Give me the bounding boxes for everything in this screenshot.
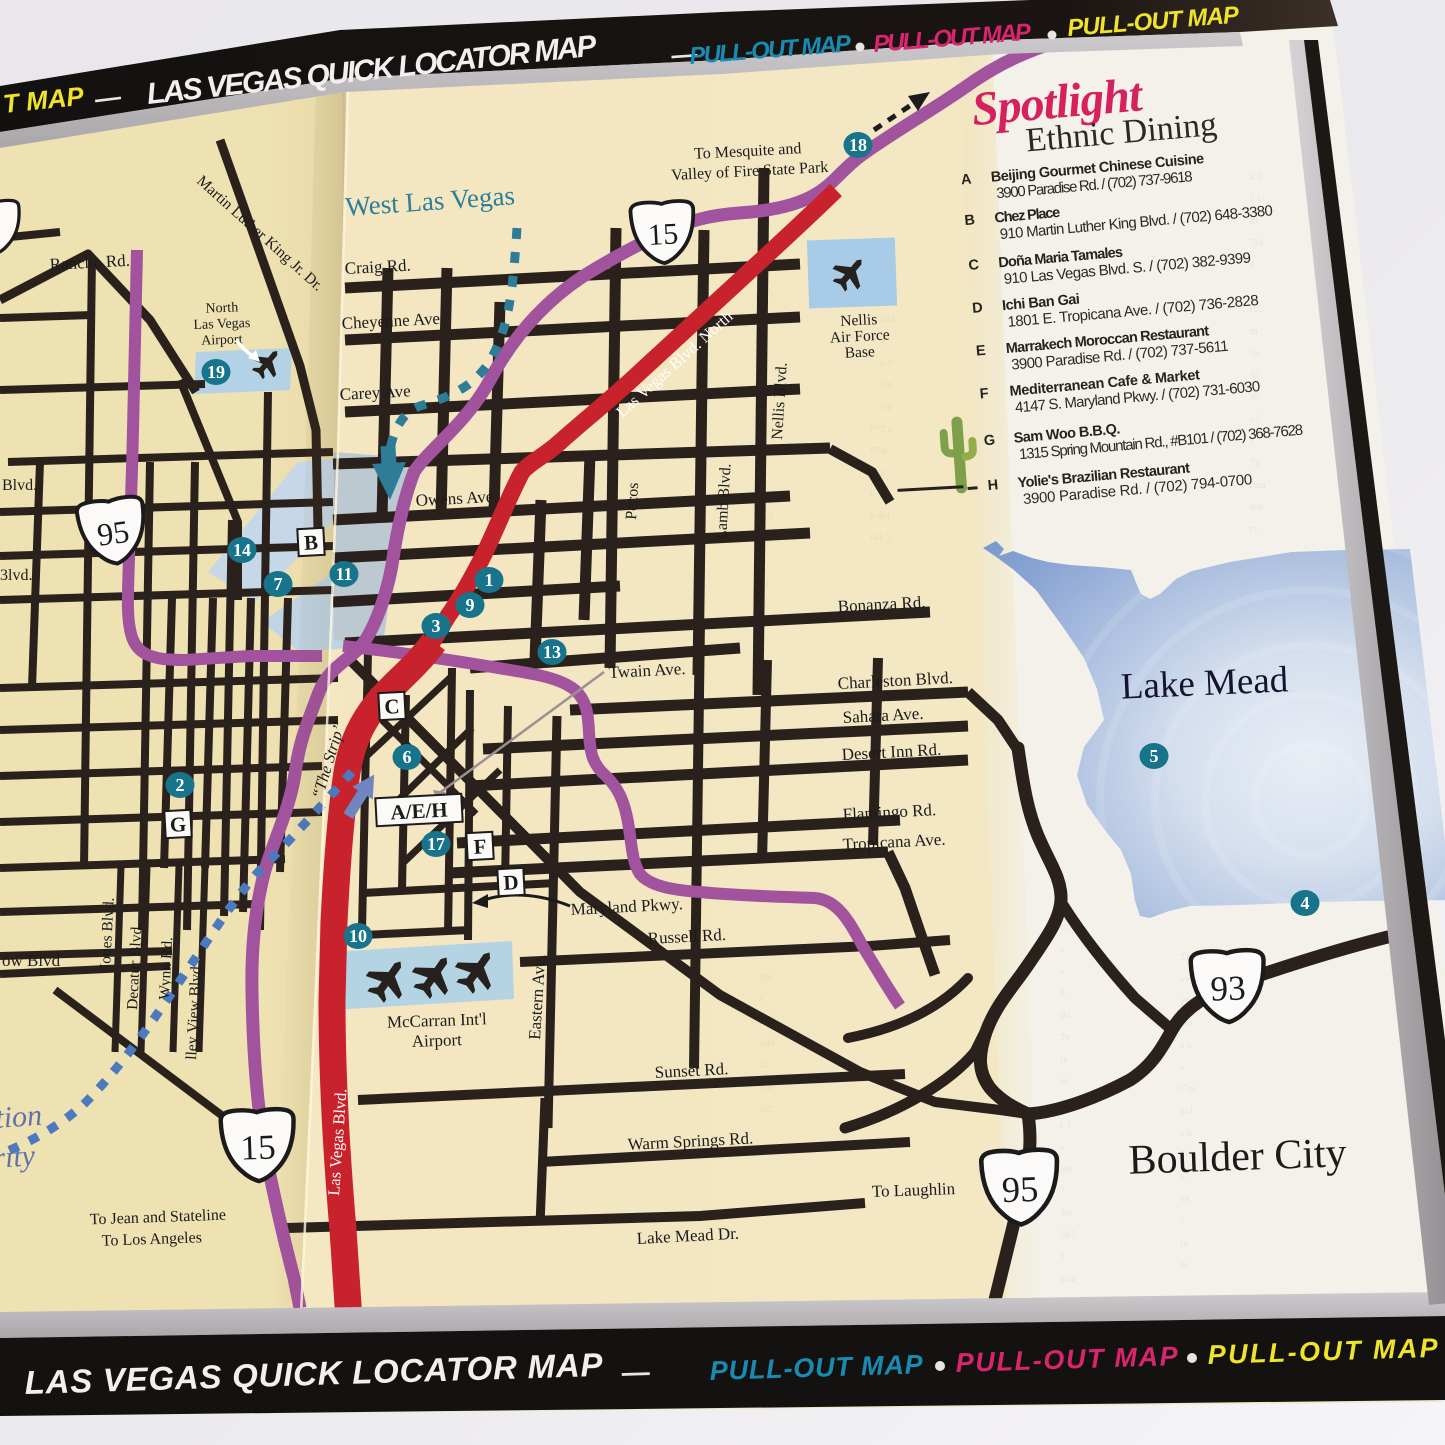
- svg-text:s: s: [1060, 1142, 1064, 1153]
- svg-text:G: G: [983, 432, 996, 449]
- svg-text:—: —: [621, 1356, 650, 1388]
- svg-text:vr: vr: [1060, 922, 1069, 933]
- svg-text:2v: 2v: [1060, 1032, 1070, 1043]
- svg-text:Base: Base: [844, 343, 875, 362]
- svg-text:n 0: n 0: [880, 358, 893, 369]
- svg-text:G: G: [169, 812, 187, 837]
- svg-text:ni3: ni3: [1180, 1106, 1193, 1117]
- svg-text:0d: 0d: [1060, 1010, 1070, 1021]
- svg-text:13: 13: [543, 642, 561, 662]
- svg-text:4t: 4t: [760, 1060, 768, 1071]
- svg-text:2: 2: [880, 292, 885, 303]
- svg-text:a a: a a: [1180, 1040, 1192, 1051]
- svg-text:ndd: ndd: [760, 1038, 775, 1049]
- svg-text:93: 93: [1210, 968, 1246, 1008]
- svg-text:n33: n33: [880, 314, 895, 325]
- svg-text:rity: rity: [0, 1139, 37, 1175]
- svg-text:A/E/H: A/E/H: [390, 798, 448, 825]
- svg-text:m 4: m 4: [1060, 1274, 1075, 1285]
- svg-text:4se: 4se: [1250, 502, 1264, 513]
- svg-text:F: F: [979, 386, 989, 403]
- svg-text:Blvd.: Blvd.: [2, 477, 37, 494]
- svg-text:H: H: [987, 477, 999, 494]
- svg-text:tion: tion: [0, 1099, 43, 1135]
- svg-text:rn: rn: [1180, 1238, 1188, 1249]
- svg-text:15: 15: [647, 216, 679, 252]
- svg-text:2: 2: [176, 775, 185, 795]
- svg-text:19: 19: [207, 362, 225, 382]
- svg-text:Wynn Rd.: Wynn Rd.: [156, 937, 176, 1001]
- svg-text:7r3: 7r3: [1250, 238, 1263, 249]
- svg-text:To Laughlin: To Laughlin: [871, 1179, 955, 1201]
- svg-text:Twain Ave.: Twain Ave.: [608, 659, 686, 682]
- svg-text:e: e: [1060, 966, 1065, 977]
- svg-text:14: 14: [233, 540, 251, 560]
- svg-text:Craig Rd.: Craig Rd.: [344, 256, 411, 278]
- svg-text:7: 7: [1180, 1216, 1185, 1227]
- svg-text:Boulder City: Boulder City: [1128, 1130, 1348, 1184]
- svg-text:er: er: [1060, 1076, 1068, 1087]
- svg-text:r 3: r 3: [1060, 1120, 1071, 1131]
- svg-text:m: m: [1250, 326, 1258, 337]
- svg-text:4: 4: [1301, 893, 1310, 913]
- svg-text:t: t: [760, 994, 763, 1005]
- svg-text:3: 3: [432, 616, 441, 636]
- svg-text:Pecos: Pecos: [623, 482, 642, 520]
- svg-text:North: North: [205, 300, 238, 316]
- svg-text:9: 9: [466, 595, 475, 615]
- svg-text:Sunset Rd.: Sunset Rd.: [654, 1059, 729, 1082]
- svg-text:—: —: [93, 81, 122, 114]
- svg-text:E: E: [975, 343, 986, 360]
- svg-text:C: C: [968, 257, 980, 274]
- svg-text:0 d: 0 d: [870, 510, 883, 521]
- svg-text:2 d: 2 d: [880, 424, 893, 435]
- svg-text:ow Blvd: ow Blvd: [2, 951, 61, 970]
- svg-text:Las Vegas: Las Vegas: [193, 316, 250, 333]
- svg-text:4t: 4t: [880, 446, 888, 457]
- svg-text:1: 1: [485, 570, 494, 590]
- svg-text:Lake Mead: Lake Mead: [1120, 659, 1290, 707]
- svg-text:ied: ied: [1060, 1164, 1072, 1175]
- svg-text:17: 17: [427, 834, 445, 854]
- svg-text:A: A: [960, 171, 972, 188]
- svg-text:Airport: Airport: [411, 1030, 462, 1051]
- svg-text:iad: iad: [870, 532, 882, 543]
- svg-text:5: 5: [1150, 746, 1159, 766]
- svg-text:6: 6: [403, 747, 412, 767]
- svg-text:7n: 7n: [1250, 458, 1260, 469]
- svg-text:95: 95: [1001, 1169, 1039, 1210]
- svg-text:Carey Ave: Carey Ave: [339, 381, 411, 404]
- svg-text:d: d: [1060, 988, 1065, 999]
- svg-text:rrs: rrs: [870, 422, 881, 433]
- svg-text:n: n: [1180, 1062, 1185, 1073]
- svg-text:v2: v2: [1250, 414, 1260, 425]
- svg-text:v: v: [1060, 944, 1065, 955]
- svg-text:0s: 0s: [1250, 348, 1259, 359]
- svg-text:t7m: t7m: [1180, 1084, 1196, 1095]
- svg-text:rv: rv: [1250, 524, 1258, 535]
- svg-text:7ar: 7ar: [880, 402, 893, 413]
- svg-text:0d7: 0d7: [1060, 1230, 1075, 1241]
- svg-text:4 3: 4 3: [1250, 172, 1263, 183]
- svg-text:m2: m2: [760, 1104, 773, 1115]
- svg-text:11: 11: [335, 564, 352, 584]
- svg-text:B: B: [964, 212, 976, 229]
- svg-text:10: 10: [349, 926, 367, 946]
- svg-text:3lvd.: 3lvd.: [0, 567, 32, 584]
- svg-text:nr: nr: [1180, 1260, 1189, 1271]
- svg-text:7: 7: [1060, 1186, 1065, 1197]
- svg-text:B: B: [303, 530, 318, 555]
- svg-text:3te: 3te: [1060, 1208, 1073, 1219]
- svg-text:en: en: [870, 444, 879, 455]
- svg-text:To Los Angeles: To Los Angeles: [101, 1229, 202, 1249]
- svg-text:15: 15: [240, 1127, 276, 1167]
- svg-text:95: 95: [95, 514, 131, 553]
- svg-text:2: 2: [1060, 1252, 1065, 1263]
- svg-text:C: C: [384, 694, 400, 719]
- svg-text:ve: ve: [1180, 1194, 1190, 1205]
- svg-text:sdr: sdr: [760, 972, 773, 983]
- svg-text:re: re: [1060, 1054, 1068, 1065]
- svg-text:D: D: [972, 300, 984, 317]
- svg-text:McCarran Int'l: McCarran Int'l: [387, 1009, 488, 1031]
- svg-text:F: F: [473, 834, 487, 859]
- svg-text:3m: 3m: [880, 380, 893, 391]
- svg-text:D: D: [503, 870, 519, 895]
- svg-text:18: 18: [849, 135, 867, 155]
- svg-text:7: 7: [274, 574, 283, 594]
